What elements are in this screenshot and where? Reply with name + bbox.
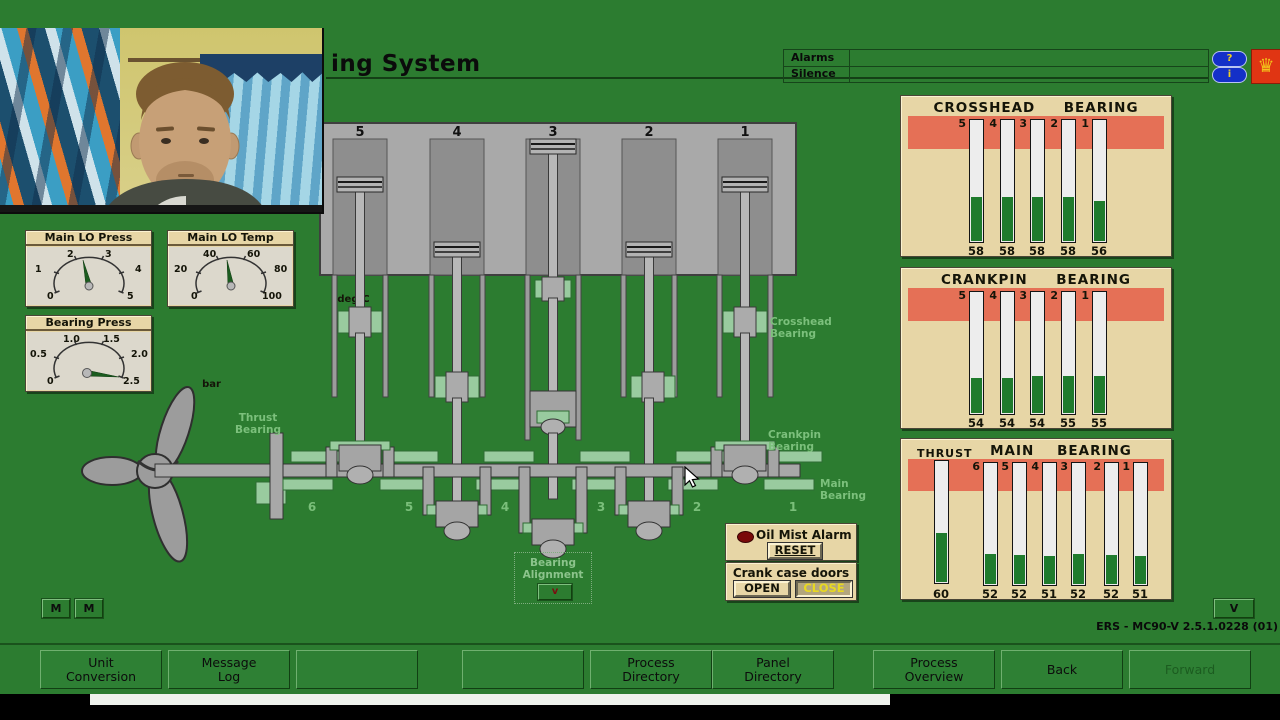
bar-gauge [1030,291,1045,415]
bar-gauge [969,119,984,243]
bar-value: 51 [1035,587,1063,601]
alarms-button[interactable]: Alarms [784,50,850,66]
thrust-bearing-label: Thrust [239,412,278,424]
bar-number: 1 [1118,460,1130,473]
tick-label: 0 [47,376,54,387]
main-bearing-label: Bearing [820,490,866,502]
bar-gauge [1071,462,1086,586]
panel-title: BEARING [1064,100,1139,116]
toolbar-unit-conversion[interactable]: UnitConversion [40,650,162,689]
silence-button[interactable]: Silence [784,66,850,82]
video-progress-bar [90,694,890,705]
tick-label: 1 [35,264,42,275]
ers-simulator-screen: — ❐ ✕ ing System Alarms Silence ? i ♛ Ma… [0,0,1280,720]
panel-title: MAIN [990,443,1034,459]
webcam-letterbox [0,205,322,212]
bar-number: 3 [1056,460,1068,473]
bar-value: 52 [1097,587,1125,601]
toolbar-blank-1[interactable] [296,650,418,689]
toolbar-process-directory[interactable]: ProcessDirectory [590,650,712,689]
crosshead-bearing-label: Crosshead [770,316,832,328]
bar-value: 51 [1126,587,1154,601]
cylinder-number: 5 [355,125,364,140]
bar-value: 55 [1054,416,1082,430]
panel-title: BEARING [1056,272,1131,288]
bar-value: 54 [1023,416,1051,430]
bar-number: 2 [1046,117,1058,130]
bar-gauge [969,291,984,415]
version-text: ERS - MC90-V 2.5.1.0228 (01) [1000,620,1278,633]
bar-gauge [1012,462,1027,586]
webcam-person [0,28,322,212]
oil-mist-alarm-panel: Oil Mist Alarm RESET [725,523,857,561]
shaft-bearing-number: 2 [693,500,701,514]
bar-number: 3 [1015,289,1027,302]
bar-number: 2 [1046,289,1058,302]
toolbar-blank-2[interactable] [462,650,584,689]
cylinder-number: 1 [740,125,749,140]
bearing-alignment-button[interactable]: v [538,584,572,600]
v-button[interactable]: V [1214,599,1254,618]
bar-gauge [1061,291,1076,415]
crankpin-bearing-label: Crankpin [768,429,821,441]
bottom-toolbar: UnitConversion MessageLog ProcessDirecto… [0,643,1280,694]
bar-number: 1 [1077,117,1089,130]
bar-value: 54 [962,416,990,430]
bar-value: 55 [1085,416,1113,430]
page-title: ing System [331,51,481,77]
bar-value: 56 [1085,244,1113,258]
help-icon[interactable]: ? [1212,51,1247,67]
bar-value: 52 [1005,587,1033,601]
bar-value: 54 [993,416,1021,430]
bar-gauge [1042,462,1057,586]
bearing-alignment-label: Alignment [515,569,591,581]
crosshead-bearing-label: Bearing [770,328,816,340]
shaft-bearing-number: 5 [405,500,413,514]
thrust-bearing-label: Bearing [235,424,281,436]
bar-number: 4 [985,117,997,130]
oil-mist-alarm-label: Oil Mist Alarm [756,528,852,542]
alarm-status-box: Alarms Silence [783,49,1209,83]
bar-number: 3 [1015,117,1027,130]
bar-gauge [1092,119,1107,243]
bar-gauge [1000,291,1015,415]
bar-gauge [1104,462,1119,586]
bearing-alignment-box: Bearing Alignment v [514,552,592,604]
bar-gauge [1030,119,1045,243]
bar-number: 5 [954,117,966,130]
info-icon[interactable]: i [1212,67,1247,83]
tick-label: 0.5 [30,349,47,360]
webcam-overlay [0,28,324,214]
crankcase-open-button[interactable]: OPEN [734,581,790,597]
cylinder-number: 3 [548,125,557,140]
crankpin-bearing-label: Bearing [768,441,814,453]
main-bearing-label: Main [820,478,849,490]
toolbar-process-overview[interactable]: ProcessOverview [873,650,995,689]
bar-gauge [1092,291,1107,415]
bar-number: 4 [985,289,997,302]
thrust-bearing [270,433,283,519]
oil-mist-led-icon [737,531,754,543]
bar-value: 58 [1054,244,1082,258]
bar-number: 6 [968,460,980,473]
bearing-alignment-label: Bearing [515,557,591,569]
shaft-bearing-number: 3 [597,500,605,514]
bar-value: 58 [962,244,990,258]
mouse-cursor [683,466,703,490]
crankshaft [155,464,800,477]
bar-value: 52 [976,587,1004,601]
panel-title: BEARING [1057,443,1132,459]
bar-gauge [1000,119,1015,243]
crankcase-doors-panel: Crank case doors OPEN CLOSE [725,562,857,601]
panel-title: CRANKPIN [941,272,1028,288]
oil-mist-reset-button[interactable]: RESET [768,543,822,559]
shaft-bearing-number: 6 [308,500,316,514]
tick-label: 0 [47,291,54,302]
crankcase-doors-label: Crank case doors [726,566,856,580]
crest-logo-icon[interactable]: ♛ [1251,49,1280,84]
thrust-main-bearing-panel: THRUST MAIN BEARING 60 6 5 4 3 2 1 52 52… [900,438,1172,600]
crankpin-bearing-panel: CRANKPIN BEARING 5 4 3 2 1 54 54 54 55 5… [900,267,1172,429]
bar-value: 58 [1023,244,1051,258]
bar-value: 60 [927,587,955,601]
bar-number: 1 [1077,289,1089,302]
bar-number: 2 [1089,460,1101,473]
shaft-bearing-number: 4 [501,500,509,514]
shaft-bearing-number: 1 [789,500,797,514]
m-button-1[interactable]: M [42,599,70,618]
toolbar-panel-directory[interactable]: PanelDirectory [712,650,834,689]
panel-title: CROSSHEAD [933,100,1035,116]
cylinder-number: 4 [452,125,461,140]
bar-number: 5 [997,460,1009,473]
bar-gauge [983,462,998,586]
cylinder-number: 2 [644,125,653,140]
bar-number: 5 [954,289,966,302]
crankcase-close-button[interactable]: CLOSE [796,581,852,597]
bar-gauge [1061,119,1076,243]
bar-value: 58 [993,244,1021,258]
toolbar-message-log[interactable]: MessageLog [168,650,290,689]
bar-value: 52 [1064,587,1092,601]
crosshead-bearing-panel: CROSSHEAD BEARING 5 4 3 2 1 58 58 58 58 … [900,95,1172,257]
bar-number: 4 [1027,460,1039,473]
m-button-2[interactable]: M [75,599,103,618]
thrust-bar-gauge [934,460,949,584]
toolbar-back[interactable]: Back [1001,650,1123,689]
bar-gauge [1133,462,1148,586]
toolbar-forward: Forward [1129,650,1251,689]
